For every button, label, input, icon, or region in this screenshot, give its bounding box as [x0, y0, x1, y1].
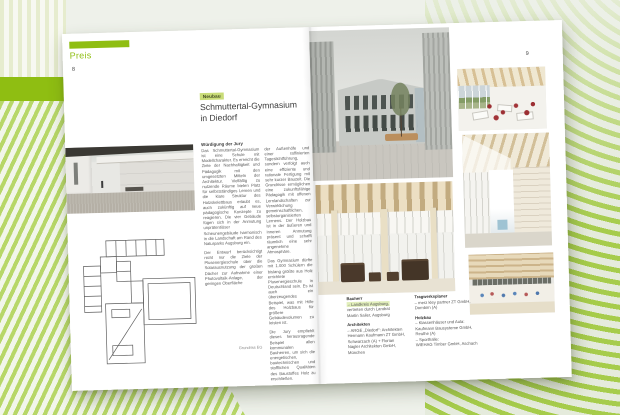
photo-red-chairs — [484, 99, 537, 122]
jury-text-column-2: der Außenhöfe und einer raffinierten Tag… — [264, 145, 316, 385]
photo-timber-ceiling — [457, 67, 545, 88]
scene-background: Preis 8 Neubau Schmuttertal-Gymnasium in… — [0, 0, 620, 415]
photo-window-row — [345, 114, 418, 133]
credits-column-left: Bauherr – Landkreis Augsburg, vertreten … — [346, 294, 408, 355]
photo-glass-wall — [463, 173, 491, 235]
floor-plan-caption: Grundriss EG — [239, 345, 263, 351]
photo-timber-tower-left — [309, 41, 336, 153]
project-credits: Bauherr – Landkreis Augsburg, vertreten … — [346, 292, 496, 355]
photo-courtyard — [309, 27, 453, 181]
credit-line: Martin Sailer, Augsburg — [347, 311, 407, 318]
category-label: Neubau — [200, 93, 224, 101]
photo-bench — [125, 187, 143, 191]
photo-timber-tower-right — [423, 32, 453, 150]
photo-timber-ceiling — [468, 252, 554, 280]
article-title: Schmuttertal-Gymnasium in Diedorf — [200, 99, 298, 123]
credit-line: Dornbirn (A) — [415, 303, 495, 311]
photo-classroom — [457, 67, 547, 131]
magazine-page-right: 9 — [309, 20, 572, 384]
photo-lounge-atrium — [315, 181, 455, 295]
decor-vertical-stripes — [0, 0, 66, 77]
section-tab-bar — [69, 40, 129, 49]
photo-window-slit — [73, 162, 77, 185]
magazine-spread: Preis 8 Neubau Schmuttertal-Gymnasium in… — [62, 20, 572, 391]
jury-paragraph: Die Jury empfiehlt dieses herausragende … — [269, 328, 315, 381]
photo-sofa — [341, 263, 365, 282]
decor-green-band — [0, 77, 66, 102]
article-title-line2: in Diedorf — [200, 110, 297, 123]
section-tab-label: Preis — [69, 50, 91, 61]
floor-plan-drawing — [80, 235, 224, 371]
photo-gravel-ground — [66, 190, 195, 214]
photo-shelving — [512, 166, 551, 233]
photo-corridor — [462, 132, 552, 247]
magazine-page-left: Preis 8 Neubau Schmuttertal-Gymnasium in… — [62, 27, 319, 391]
photo-end-window — [497, 220, 507, 230]
photo-ottoman — [368, 272, 381, 281]
photo-sofa — [401, 259, 429, 281]
photo-person — [101, 181, 103, 188]
page-number-right: 9 — [526, 51, 529, 57]
jury-paragraph: Das Schmuttertal-Gymnasium ist eine Schu… — [201, 147, 262, 247]
page-number-left: 8 — [72, 67, 75, 73]
photo-ottoman — [386, 272, 399, 281]
credits-column-right: Tragwerksplaner – merz kley partner ZT G… — [414, 292, 496, 353]
floor-plan-svg — [80, 235, 224, 371]
jury-paragraph: Das Gymnasium dürfte mit 1.000 Schülern … — [267, 257, 314, 325]
credit-line: WIEHAG Timber GmbH, Aschach — [416, 340, 496, 348]
photo-covered-walkway — [65, 144, 195, 214]
jury-paragraph: der Außenhöfe und einer raffinierten Tag… — [264, 145, 312, 254]
credit-line: München — [348, 348, 408, 355]
photo-floor — [465, 232, 552, 248]
photo-building-wall — [65, 154, 92, 193]
